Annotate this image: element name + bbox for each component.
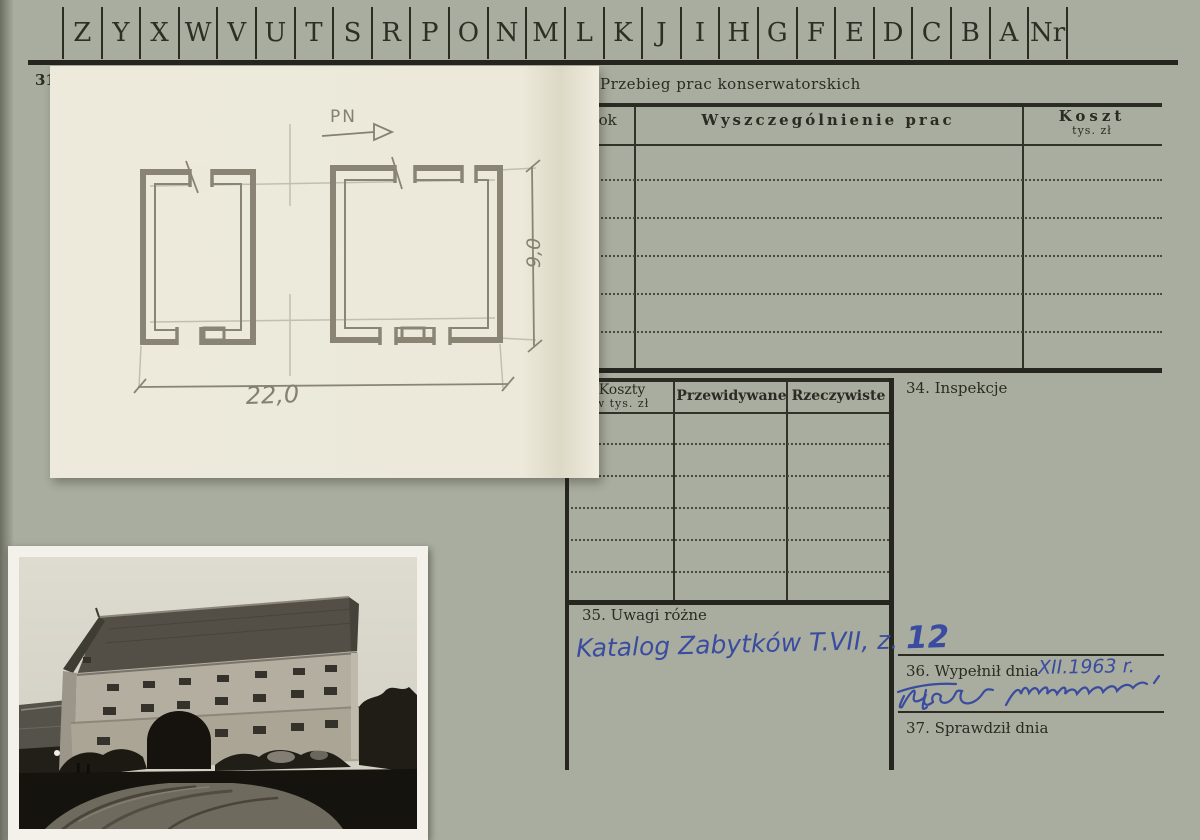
table-row-line <box>566 475 889 477</box>
photo-print <box>8 546 428 840</box>
conservation-table <box>570 103 1162 373</box>
tab-letter: C <box>911 7 950 59</box>
inspections-label: 34. Inspekcje <box>906 379 1007 397</box>
costs-col3-header: Rzeczywiste <box>788 388 889 404</box>
table-row-line <box>570 331 1162 333</box>
column-divider <box>786 382 788 600</box>
column-divider <box>673 382 675 600</box>
tab-letter: N <box>487 7 526 59</box>
tab-letter: I <box>680 7 719 59</box>
tab-letter: S <box>332 7 371 59</box>
table-row-line <box>570 179 1162 181</box>
table-row-line <box>566 443 889 445</box>
table-row-line <box>570 255 1162 257</box>
signature-ink <box>896 674 1168 714</box>
tab-letter: T <box>294 7 333 59</box>
tab-letter: W <box>178 7 217 59</box>
tab-letter: V <box>216 7 255 59</box>
tab-letter: M <box>525 7 564 59</box>
tab-letter: L <box>564 7 603 59</box>
tab-letter: O <box>448 7 487 59</box>
plan-height-dimension: 9,0 <box>523 238 545 268</box>
north-label: PN <box>330 107 357 127</box>
header-separator <box>566 412 889 414</box>
tab-letter: Nr <box>1027 7 1068 59</box>
remarks-label: 35. Uwagi różne <box>582 606 707 624</box>
tab-letter: H <box>718 7 757 59</box>
col-header-works: Wyszczególnienie prac <box>634 111 1022 129</box>
col-header-cost-sub: tys. zł <box>1022 124 1162 137</box>
column-divider <box>634 107 636 368</box>
tab-letter: K <box>603 7 642 59</box>
index-tab-row: ZYXWVUTSRPONMLKJIHGFEDCBANr <box>62 7 1068 59</box>
table-row-line <box>566 507 889 509</box>
tab-letter: Y <box>101 7 140 59</box>
column-divider <box>1022 107 1024 368</box>
section-rule <box>898 711 1164 713</box>
granary-photo-image <box>19 557 417 829</box>
tab-letter: F <box>796 7 835 59</box>
table-row-line <box>570 293 1162 295</box>
conservation-table-title: Przebieg prac konserwatorskich <box>600 75 861 93</box>
remarks-note-text: Katalog Zabytków T.VII, z. <box>576 625 907 663</box>
table-row-line <box>566 571 889 573</box>
tab-letter: D <box>873 7 912 59</box>
tab-letter: E <box>834 7 873 59</box>
section-divider-border <box>889 378 894 770</box>
tab-letter: J <box>641 7 680 59</box>
tab-letter: U <box>255 7 294 59</box>
tab-letter: X <box>139 7 178 59</box>
tab-letter: G <box>757 7 796 59</box>
floor-plan-sketch: 22,0 9,0 PN <box>50 66 599 478</box>
index-tab-underline <box>28 60 1178 65</box>
plan-width-dimension: 22,0 <box>245 380 299 410</box>
tab-letter: P <box>409 7 448 59</box>
remarks-note-number: 12 <box>906 619 950 656</box>
costs-col2-header: Przewidywane <box>675 388 788 404</box>
table-row-line <box>566 539 889 541</box>
header-separator <box>570 144 1162 146</box>
table-row-line <box>570 217 1162 219</box>
tab-letter: Z <box>62 7 101 59</box>
record-card-page: ZYXWVUTSRPONMLKJIHGFEDCBANr 31 Przebieg … <box>0 0 1200 840</box>
tab-letter: A <box>989 7 1028 59</box>
plan-sheet: 22,0 9,0 PN <box>50 66 599 478</box>
tab-letter: R <box>371 7 410 59</box>
tab-letter: B <box>950 7 989 59</box>
col-header-cost: Koszt <box>1022 107 1162 125</box>
checked-label: 37. Sprawdził dnia <box>906 719 1048 737</box>
costs-table <box>566 378 889 605</box>
